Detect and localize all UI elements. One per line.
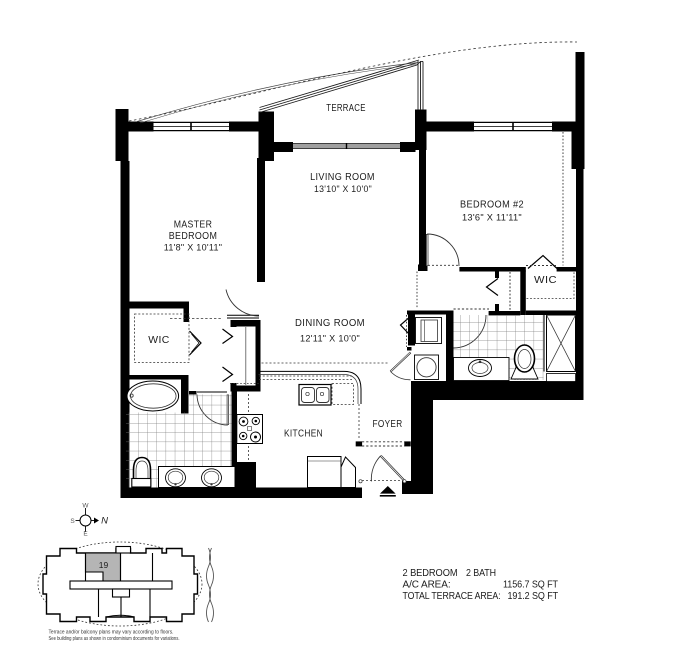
svg-text:WIC: WIC bbox=[148, 335, 170, 346]
svg-text:TERRACE: TERRACE bbox=[326, 103, 366, 114]
svg-text:Terrace and/or balcony plans m: Terrace and/or balcony plans may vary ac… bbox=[49, 630, 174, 636]
svg-text:2 BEDROOM: 2 BEDROOM bbox=[403, 567, 458, 579]
svg-text:FOYER: FOYER bbox=[373, 419, 403, 430]
svg-text:TOTAL TERRACE AREA:: TOTAL TERRACE AREA: bbox=[403, 590, 501, 602]
svg-text:11'8" X 10'11": 11'8" X 10'11" bbox=[164, 243, 223, 254]
svg-text:13'10" X 10'0": 13'10" X 10'0" bbox=[314, 184, 372, 195]
svg-text:13'6" X 11'11": 13'6" X 11'11" bbox=[462, 213, 522, 224]
svg-text:12'11" X 10'0": 12'11" X 10'0" bbox=[300, 334, 360, 345]
svg-text:DINING ROOM: DINING ROOM bbox=[295, 318, 365, 329]
svg-text:WIC: WIC bbox=[534, 275, 557, 286]
svg-text:MASTER: MASTER bbox=[174, 220, 213, 231]
svg-text:1156.7 SQ FT: 1156.7 SQ FT bbox=[503, 579, 559, 591]
svg-text:KITCHEN: KITCHEN bbox=[284, 429, 323, 440]
svg-text:191.2 SQ FT: 191.2 SQ FT bbox=[508, 590, 559, 602]
svg-text:N: N bbox=[101, 516, 108, 527]
svg-text:2 BATH: 2 BATH bbox=[466, 567, 496, 579]
svg-text:BEDROOM #2: BEDROOM #2 bbox=[460, 200, 524, 211]
svg-text:LIVING ROOM: LIVING ROOM bbox=[310, 172, 375, 183]
svg-text:E: E bbox=[83, 531, 88, 538]
svg-text:See building plans as shown in: See building plans as shown in condomini… bbox=[49, 636, 180, 642]
svg-text:W: W bbox=[82, 503, 89, 510]
svg-text:19: 19 bbox=[99, 560, 109, 570]
svg-text:S: S bbox=[70, 518, 75, 525]
svg-text:BEDROOM: BEDROOM bbox=[169, 231, 218, 242]
svg-text:A/C AREA:: A/C AREA: bbox=[403, 579, 451, 591]
